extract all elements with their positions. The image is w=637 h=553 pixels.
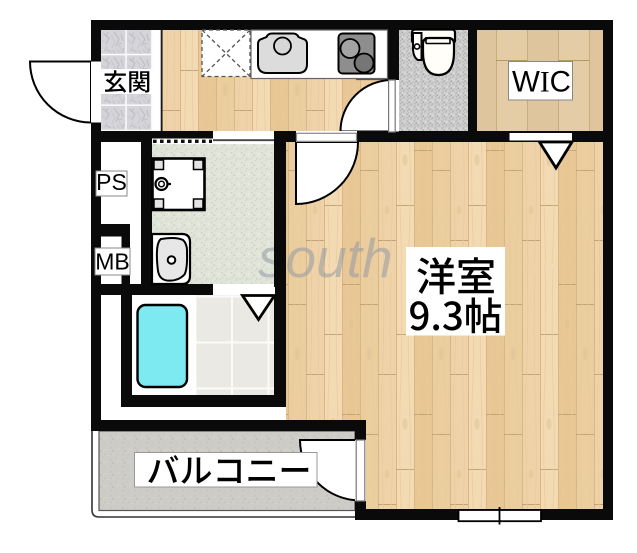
- svg-text:WIC: WIC: [512, 66, 571, 99]
- svg-text:PS: PS: [96, 169, 127, 195]
- svg-text:MB: MB: [95, 249, 130, 275]
